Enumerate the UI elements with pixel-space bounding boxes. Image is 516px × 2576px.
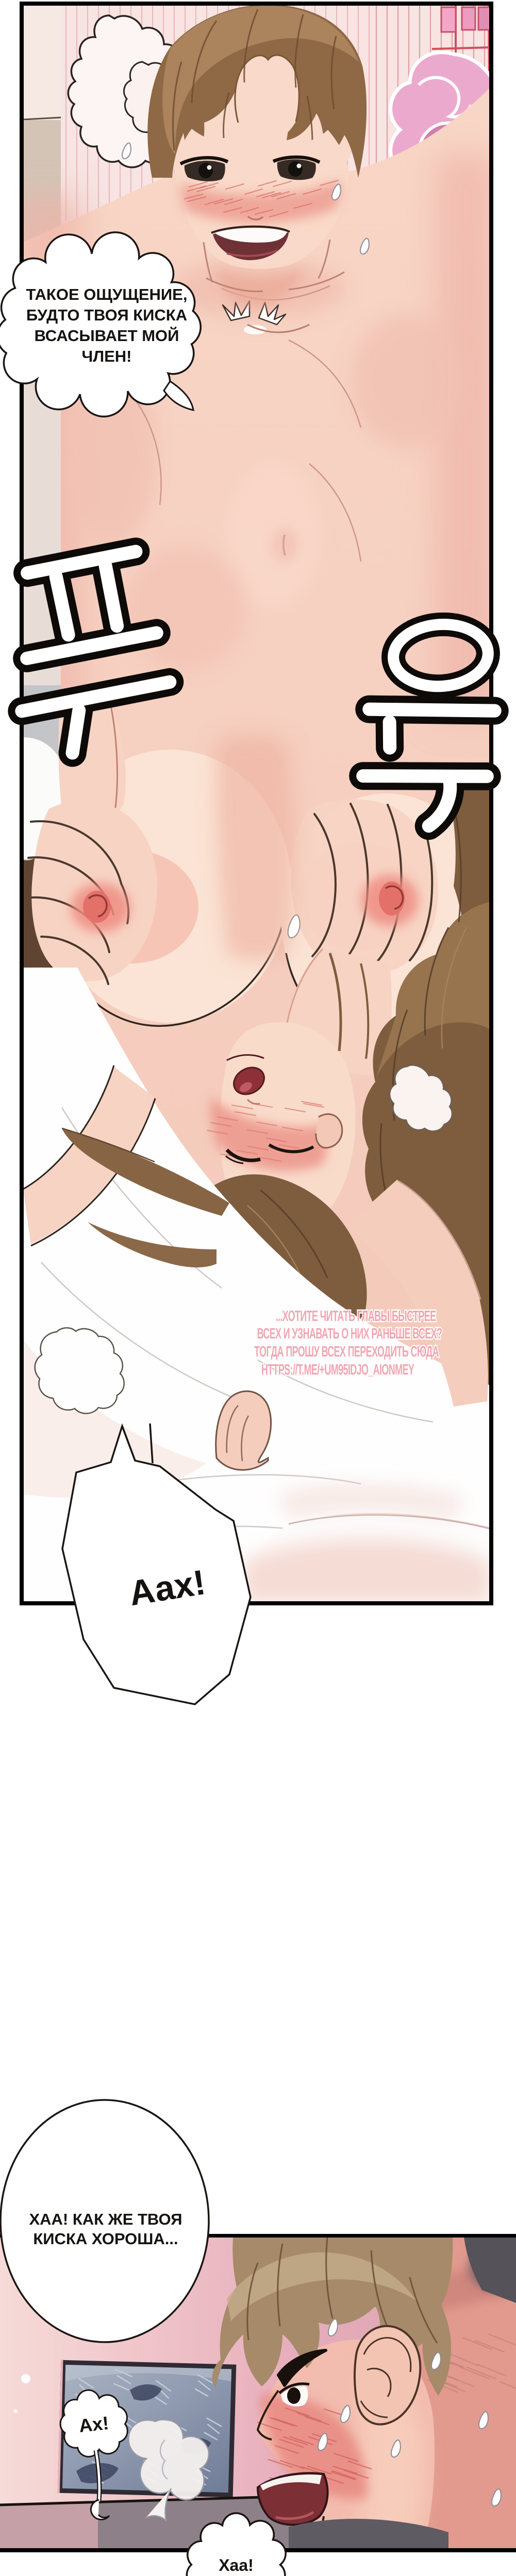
svg-text:КИСКА ХОРОША...: КИСКА ХОРОША... xyxy=(33,2230,178,2248)
svg-text:ТАКОЕ ОЩУЩЕНИЕ,: ТАКОЕ ОЩУЩЕНИЕ, xyxy=(26,285,188,303)
svg-text:ХАА! КАК ЖЕ ТВОЯ: ХАА! КАК ЖЕ ТВОЯ xyxy=(29,2210,182,2228)
svg-text:БУДТО ТВОЯ КИСКА: БУДТО ТВОЯ КИСКА xyxy=(26,306,187,324)
svg-text:Ах!: Ах! xyxy=(78,2412,110,2436)
svg-text:Хаа!: Хаа! xyxy=(219,2556,254,2574)
svg-text:HTTPS://T.ME/+UM95IDJO_AIONMEY: HTTPS://T.ME/+UM95IDJO_AIONMEY xyxy=(261,1362,414,1378)
svg-text:ТОГДА ПРОШУ ВСЕХ ПЕРЕХОДИТЬ СЮ: ТОГДА ПРОШУ ВСЕХ ПЕРЕХОДИТЬ СЮДА xyxy=(254,1344,439,1360)
svg-text:ВСАСЫВАЕТ МОЙ: ВСАСЫВАЕТ МОЙ xyxy=(35,326,179,345)
svg-text:ЧЛЕН!: ЧЛЕН! xyxy=(82,347,132,365)
svg-text:ВСЕХ И УЗНАВАТЬ О НИХ РАНЬШЕ В: ВСЕХ И УЗНАВАТЬ О НИХ РАНЬШЕ ВСЕХ? xyxy=(257,1326,442,1342)
svg-text:...ХОТИТЕ ЧИТАТЬ ГЛАВЫ БЫСТРЕЕ: ...ХОТИТЕ ЧИТАТЬ ГЛАВЫ БЫСТРЕЕ xyxy=(276,1308,436,1325)
